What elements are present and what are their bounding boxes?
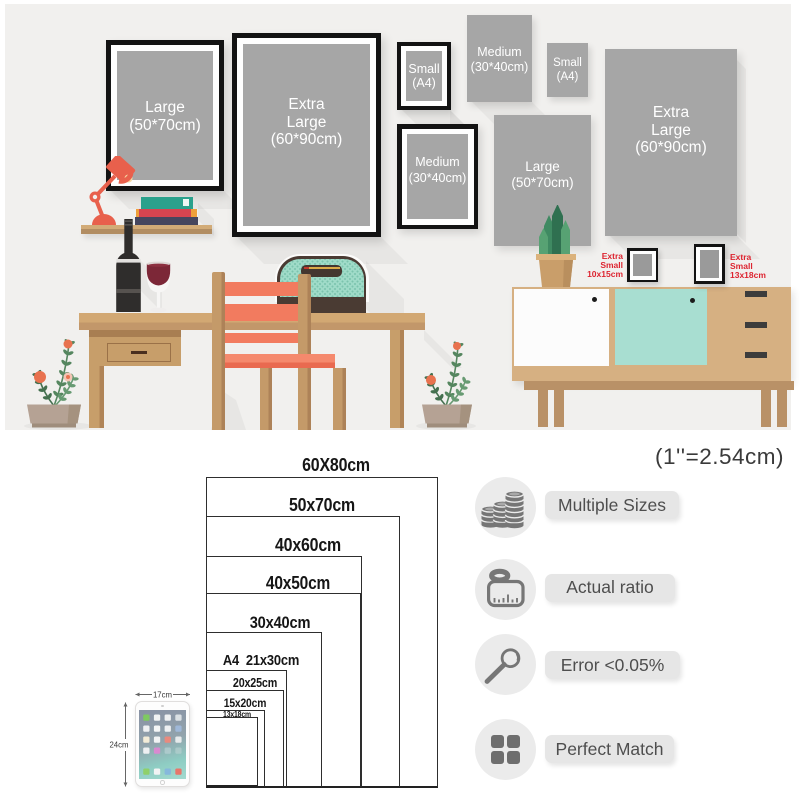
svg-text:24cm: 24cm	[109, 741, 128, 750]
svg-text:17cm: 17cm	[153, 690, 172, 699]
